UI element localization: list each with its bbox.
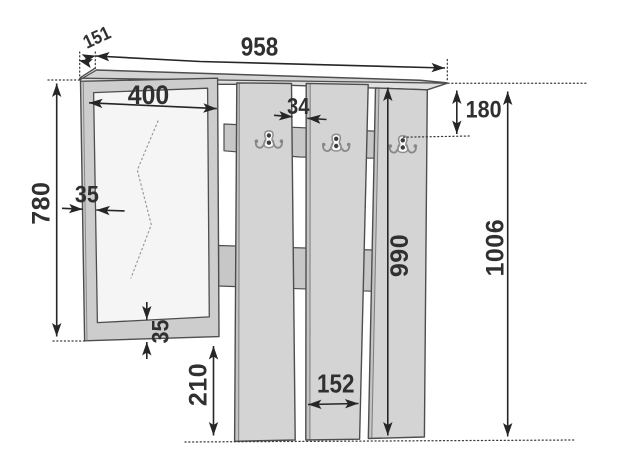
svg-text:780: 780 [28,182,56,225]
svg-text:400: 400 [128,81,169,110]
svg-text:990: 990 [386,234,414,277]
svg-text:34: 34 [287,93,310,120]
svg-text:210: 210 [185,363,213,406]
svg-text:958: 958 [241,33,278,62]
svg-text:35: 35 [146,319,174,343]
svg-text:35: 35 [75,180,99,208]
svg-text:180: 180 [466,95,502,123]
svg-text:152: 152 [317,370,354,399]
svg-text:1006: 1006 [481,219,509,277]
